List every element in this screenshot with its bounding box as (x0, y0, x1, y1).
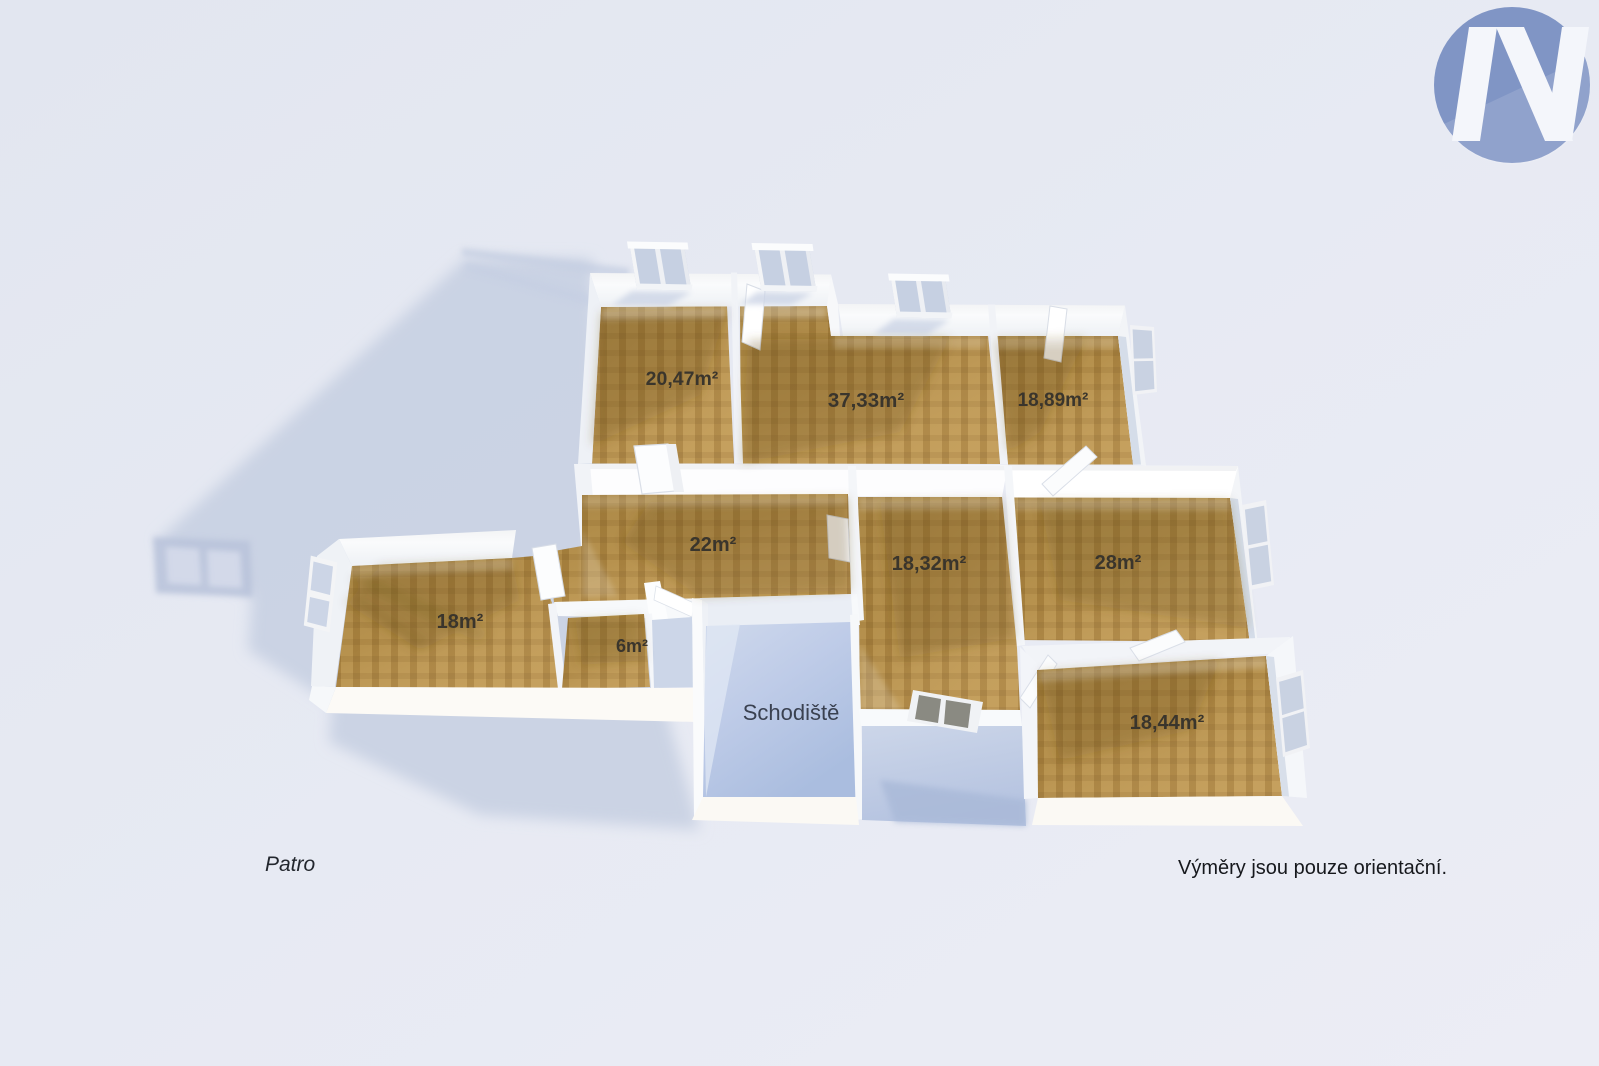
svg-text:28m²: 28m² (1095, 552, 1142, 574)
svg-text:Výměry jsou pouze orientační.: Výměry jsou pouze orientační. (1178, 857, 1447, 879)
svg-text:18,89m²: 18,89m² (1018, 390, 1089, 411)
svg-text:6m²: 6m² (616, 636, 648, 656)
svg-text:37,33m²: 37,33m² (828, 389, 905, 412)
svg-text:18m²: 18m² (437, 611, 484, 633)
svg-text:18,44m²: 18,44m² (1130, 712, 1205, 734)
svg-text:Patro: Patro (265, 853, 316, 876)
svg-text:20,47m²: 20,47m² (646, 368, 719, 390)
svg-text:18,32m²: 18,32m² (892, 553, 967, 575)
svg-text:22m²: 22m² (690, 534, 737, 556)
svg-text:Schodiště: Schodiště (743, 700, 840, 725)
